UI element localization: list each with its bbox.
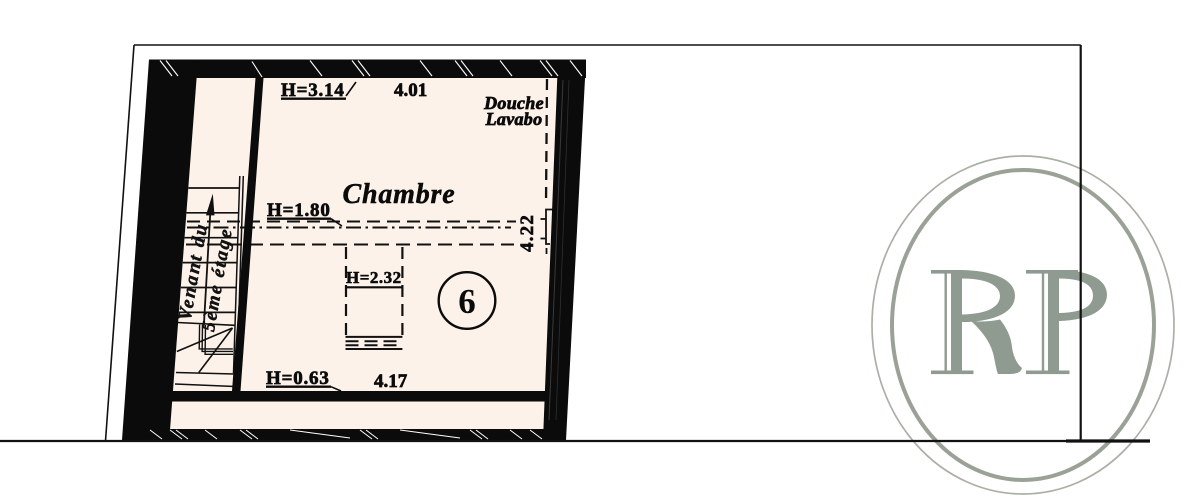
svg-text:Chambre: Chambre — [343, 179, 456, 210]
svg-text:6: 6 — [458, 282, 476, 321]
svg-text:Lavabo: Lavabo — [485, 109, 543, 129]
svg-text:H=2.32: H=2.32 — [346, 268, 402, 287]
svg-text:4.17: 4.17 — [374, 371, 408, 392]
svg-text:4.01: 4.01 — [394, 80, 427, 101]
svg-text:4.22: 4.22 — [517, 214, 538, 252]
